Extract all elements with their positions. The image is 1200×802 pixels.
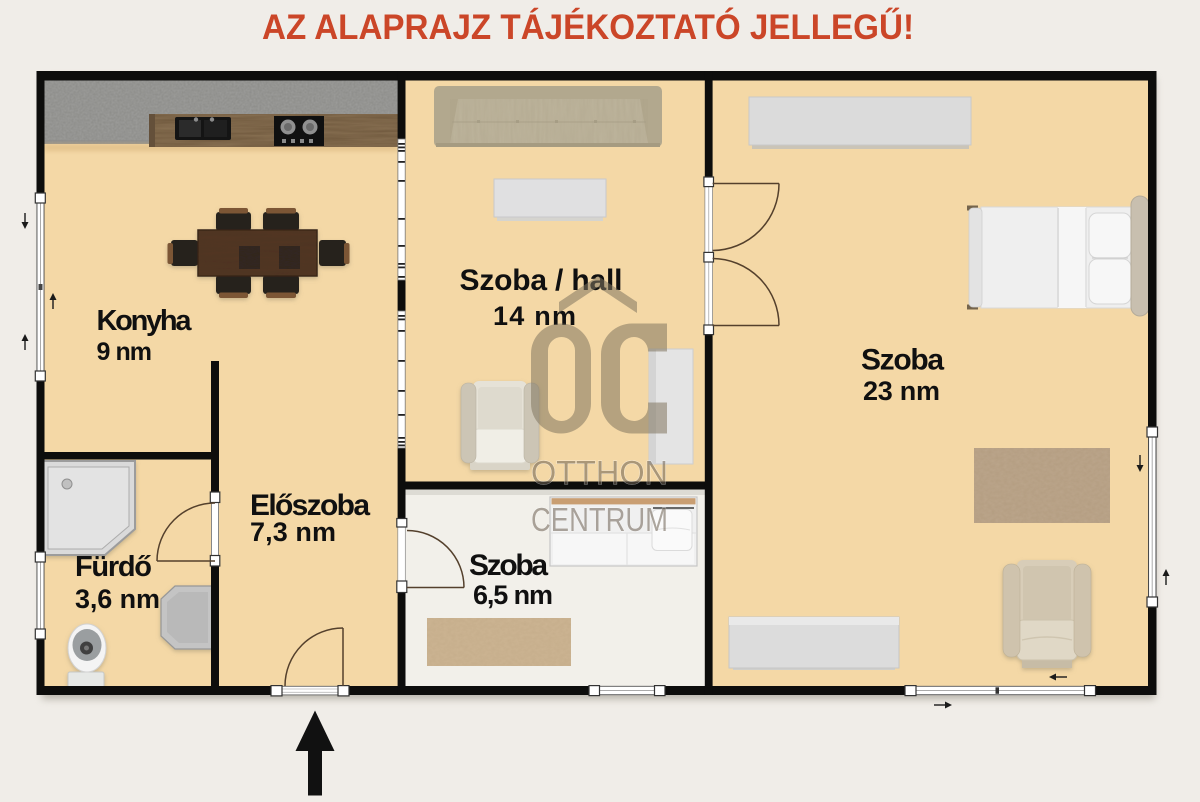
svg-text:9 nm: 9 nm [97, 338, 153, 366]
svg-text:6,5 nm: 6,5 nm [473, 580, 553, 610]
svg-text:OTTHON: OTTHON [531, 454, 668, 491]
svg-text:3,6 nm: 3,6 nm [75, 584, 160, 614]
svg-text:Szoba: Szoba [469, 549, 548, 582]
svg-text:Konyha: Konyha [97, 305, 193, 337]
svg-text:Fürdő: Fürdő [75, 551, 152, 583]
svg-text:7,3 nm: 7,3 nm [250, 517, 336, 547]
svg-text:Szoba: Szoba [861, 344, 944, 377]
svg-text:AZ ALAPRAJZ TÁJÉKOZTATÓ JELLEG: AZ ALAPRAJZ TÁJÉKOZTATÓ JELLEGŰ! [262, 7, 914, 47]
svg-text:23 nm: 23 nm [863, 376, 940, 406]
svg-text:CENTRUM: CENTRUM [531, 501, 668, 538]
